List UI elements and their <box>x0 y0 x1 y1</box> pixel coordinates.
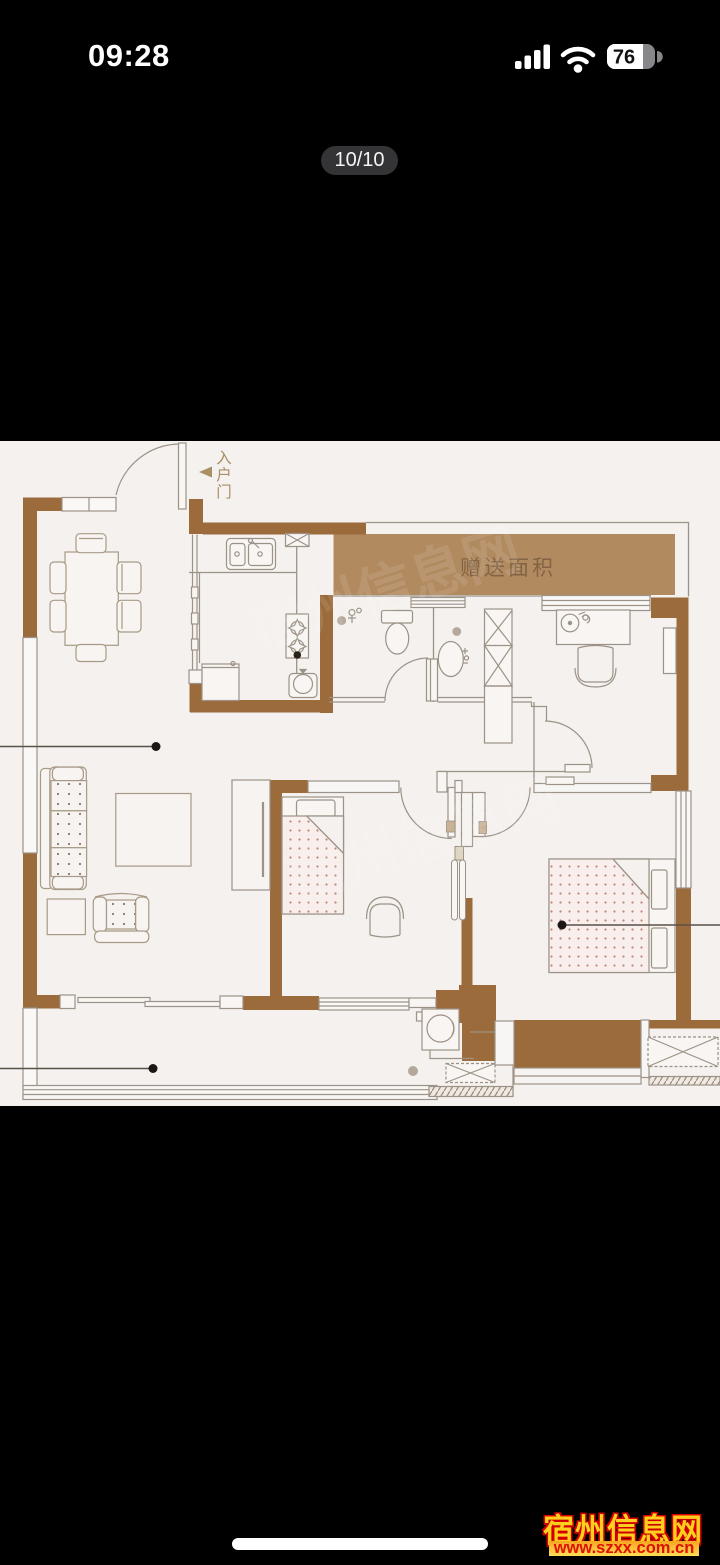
svg-text:门: 门 <box>216 483 232 501</box>
svg-text:户: 户 <box>216 466 232 484</box>
svg-text:入: 入 <box>216 450 232 467</box>
svg-text:76: 76 <box>613 47 635 69</box>
